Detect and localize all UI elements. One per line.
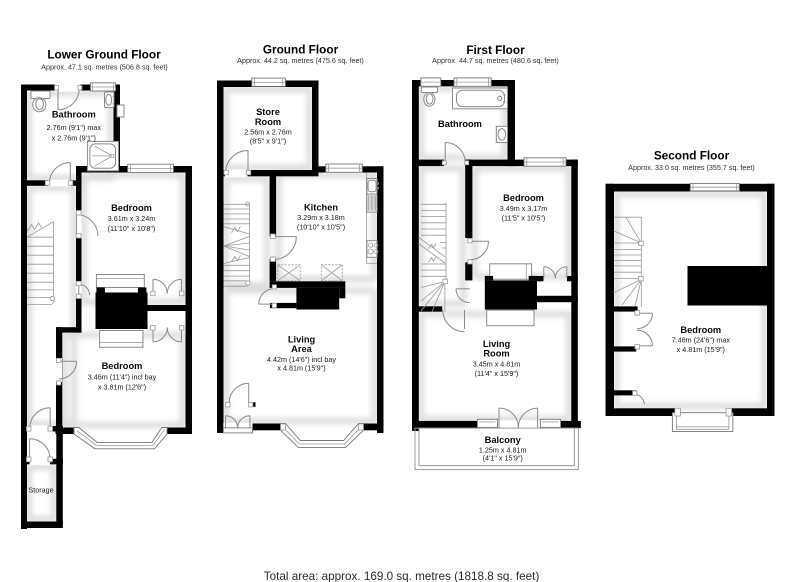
svg-text:x 4.81m (15'9"): x 4.81m (15'9") xyxy=(677,345,725,354)
svg-text:Approx. 44.2 sq. metres (475.6: Approx. 44.2 sq. metres (475.6 sq. feet) xyxy=(237,56,364,65)
svg-text:Bedroom: Bedroom xyxy=(503,193,544,203)
svg-text:3.45m x 4.81m: 3.45m x 4.81m xyxy=(473,360,521,369)
svg-text:Bedroom: Bedroom xyxy=(680,325,721,335)
svg-text:3.46m (11'4") incl bay: 3.46m (11'4") incl bay xyxy=(88,373,157,382)
svg-text:Room: Room xyxy=(483,349,509,359)
svg-text:x 2.76m (9'1"): x 2.76m (9'1") xyxy=(52,133,96,142)
svg-text:3.49m x 3.17m: 3.49m x 3.17m xyxy=(500,204,548,213)
svg-text:Bathroom: Bathroom xyxy=(438,119,482,129)
svg-text:Room: Room xyxy=(255,117,281,127)
svg-text:Store: Store xyxy=(256,107,280,117)
svg-text:First Floor: First Floor xyxy=(466,43,525,57)
svg-text:x 3.81m (12'6"): x 3.81m (12'6") xyxy=(98,383,146,392)
svg-text:Storage: Storage xyxy=(28,486,53,495)
svg-text:2.56m x 2.76m: 2.56m x 2.76m xyxy=(244,128,292,137)
svg-text:Approx. 44.7 sq. metres (480.6: Approx. 44.7 sq. metres (480.6 sq. feet) xyxy=(432,56,559,65)
svg-text:Total area: approx. 169.0 sq.: Total area: approx. 169.0 sq. metres (18… xyxy=(264,570,540,582)
svg-text:4.42m (14'6") incl bay: 4.42m (14'6") incl bay xyxy=(267,355,336,364)
svg-text:Ground Floor: Ground Floor xyxy=(263,43,339,57)
svg-text:Kitchen: Kitchen xyxy=(304,202,338,212)
svg-text:Bedroom: Bedroom xyxy=(102,361,143,371)
svg-text:Living: Living xyxy=(483,339,511,349)
svg-text:2.76m (9'1") max: 2.76m (9'1") max xyxy=(47,123,102,132)
svg-text:Second Floor: Second Floor xyxy=(654,149,730,163)
svg-text:Bathroom: Bathroom xyxy=(52,109,96,119)
svg-text:3.29m x 3.18m: 3.29m x 3.18m xyxy=(297,213,345,222)
svg-text:x 4.81m (15'9"): x 4.81m (15'9") xyxy=(277,364,325,373)
svg-text:3.61m x 3.24m: 3.61m x 3.24m xyxy=(108,214,156,223)
svg-text:Area: Area xyxy=(291,344,313,354)
svg-text:(8'5" x 9'1"): (8'5" x 9'1") xyxy=(250,137,286,146)
svg-text:(10'10" x 10'5"): (10'10" x 10'5") xyxy=(297,223,345,232)
svg-text:7.46m (24'6") max: 7.46m (24'6") max xyxy=(672,336,731,345)
svg-text:Approx. 47.1 sq. metres (506.8: Approx. 47.1 sq. metres (506.8 sq. feet) xyxy=(41,63,168,72)
svg-text:(11'5" x 10'5"): (11'5" x 10'5") xyxy=(502,214,546,223)
svg-text:Lower Ground Floor: Lower Ground Floor xyxy=(47,48,161,62)
svg-text:(11'10" x 10'8"): (11'10" x 10'8") xyxy=(108,224,156,233)
svg-text:Balcony: Balcony xyxy=(485,435,522,445)
svg-text:Approx. 33.0 sq. metres (355.7: Approx. 33.0 sq. metres (355.7 sq. feet) xyxy=(628,163,755,172)
svg-text:Bedroom: Bedroom xyxy=(111,203,152,213)
svg-text:(4'1" x 15'9"): (4'1" x 15'9") xyxy=(483,454,523,463)
svg-text:(11'4" x 15'9"): (11'4" x 15'9") xyxy=(475,369,519,378)
